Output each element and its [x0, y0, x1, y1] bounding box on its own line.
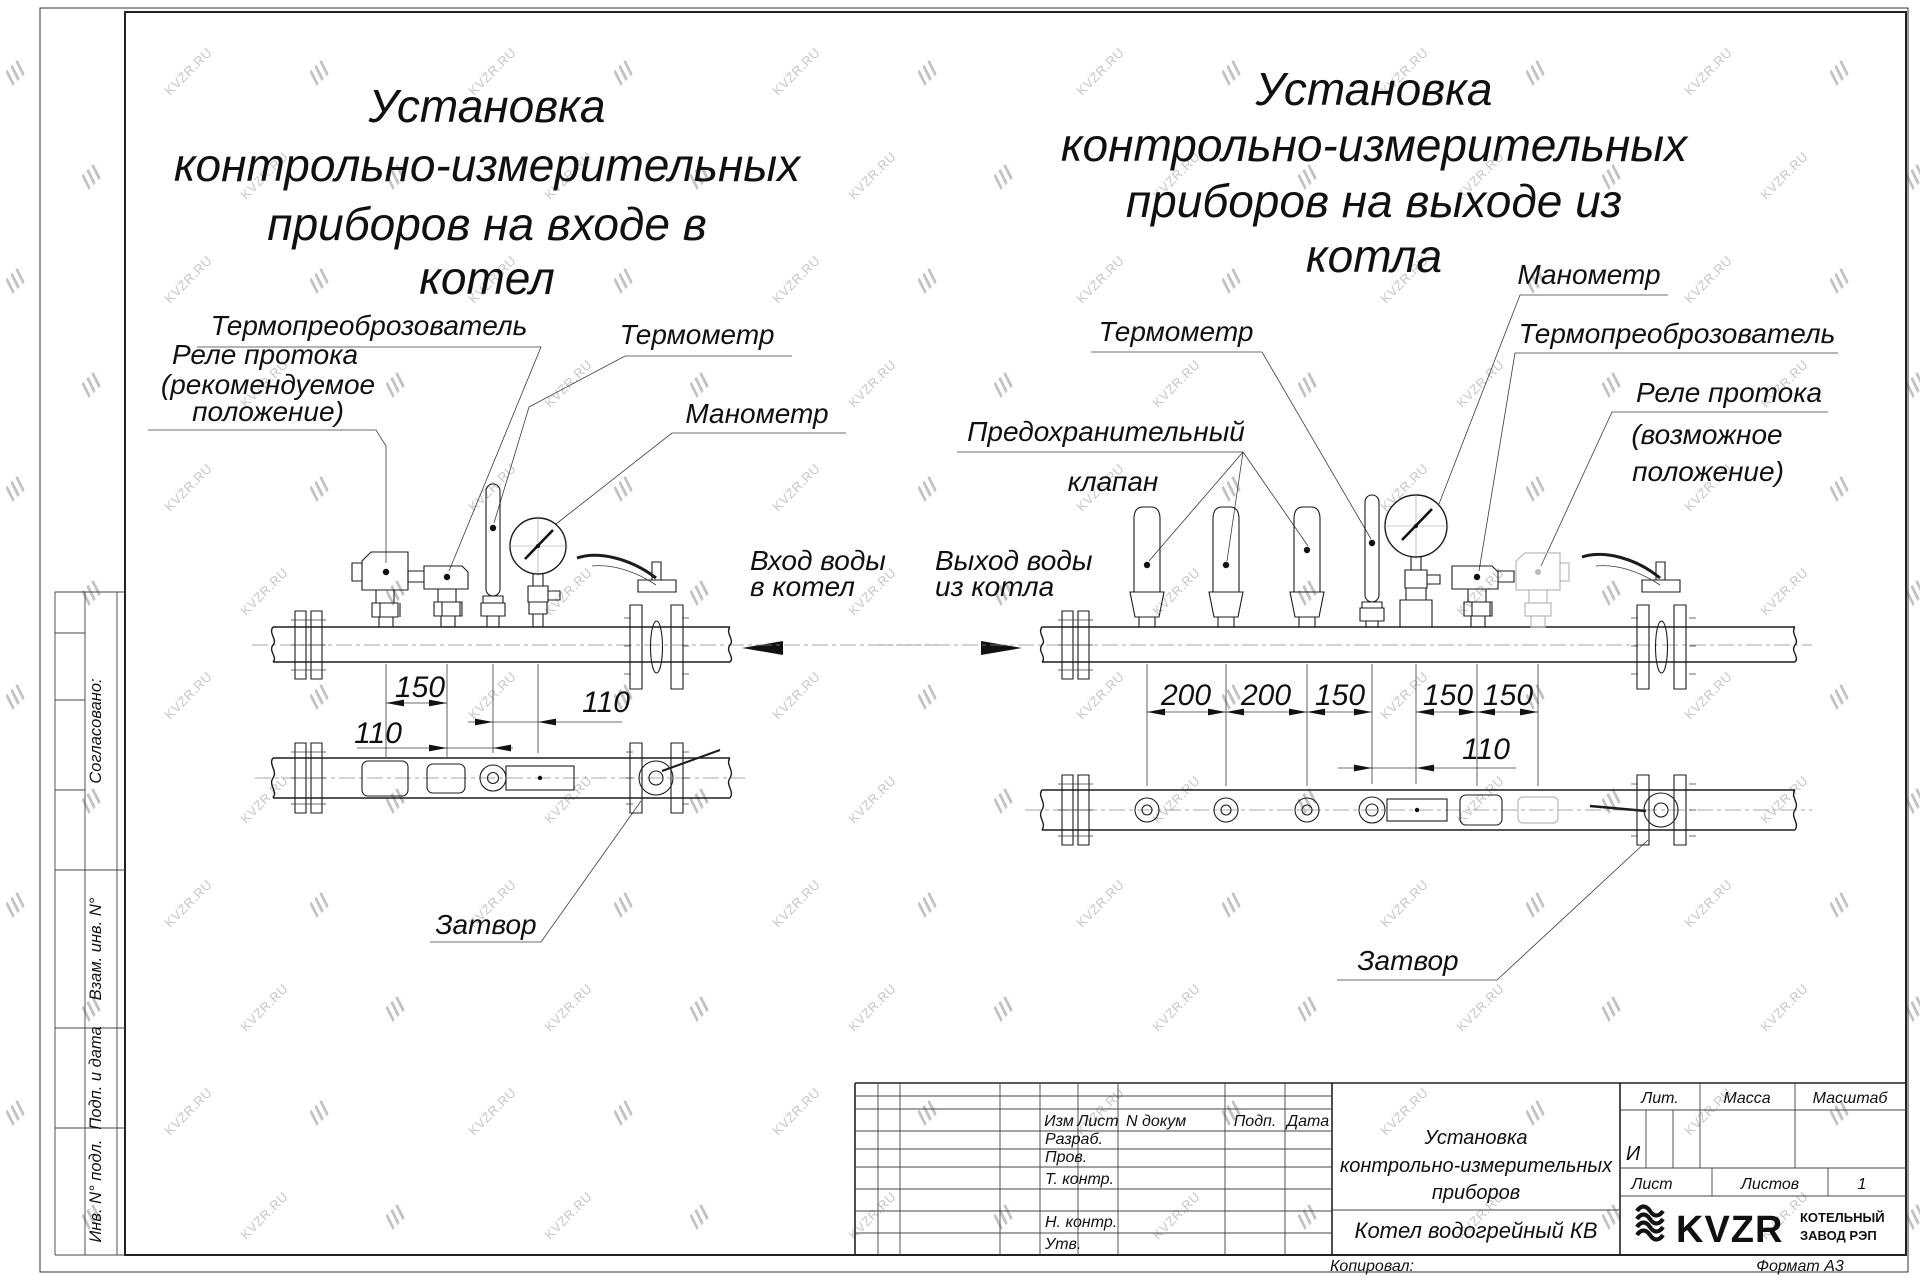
sheet-label: Лист	[1630, 1176, 1672, 1193]
sidebar-label-replace-inv: Взам. инв. N°	[87, 897, 105, 1000]
left-dim-150: 150	[395, 671, 445, 704]
title-block: Изм Лист N докум Подп. Дата Разраб. Пров…	[855, 1083, 1906, 1275]
col-sign: Подп.	[1234, 1113, 1277, 1130]
left-manometer	[508, 516, 568, 627]
left-dim-110-a: 110	[582, 686, 630, 719]
right-label-safety-valve-line2: клапан	[1068, 466, 1159, 497]
row-checked: Пров.	[1045, 1149, 1087, 1166]
sidebar-label-orig-inv: Инв. N° подл.	[87, 1139, 105, 1242]
left-dim-arrows	[386, 700, 556, 752]
right-valve-lever	[1582, 555, 1660, 578]
right-dim-150-a: 150	[1315, 679, 1365, 712]
left-label-thermometer: Термометр	[620, 319, 775, 350]
sidebar-label-agreed: Согласовано:	[87, 678, 105, 783]
mass-label: Масса	[1723, 1090, 1770, 1107]
left-label-flow-relay-line1: Реле протока	[172, 339, 358, 370]
right-thermometer	[1360, 495, 1384, 627]
right-dim-150-c: 150	[1483, 679, 1533, 712]
right-butterfly-valve	[1582, 555, 1696, 689]
brand-sub-line2: ЗАВОД РЭП	[1800, 1228, 1877, 1243]
left-view: Установка контрольно-измерительных прибо…	[148, 80, 938, 942]
left-leader-manometer	[556, 433, 846, 524]
right-label-thermometer: Термометр	[1099, 316, 1254, 347]
col-izm: Изм	[1044, 1113, 1074, 1130]
doc-title-line1: Установка	[1423, 1127, 1527, 1149]
left-flow-label-line2: в котел	[750, 571, 855, 602]
drawing-sheet: KVZR.RUKVZR.RUKVZR.RUKVZR.RUKVZR.RUKVZR.…	[0, 0, 1920, 1280]
row-t-control: Т. контр.	[1045, 1171, 1114, 1188]
right-title-line1: Установка	[1255, 63, 1493, 115]
left-label-manometer: Манометр	[685, 398, 828, 429]
row-n-control: Н. контр.	[1045, 1214, 1117, 1231]
doc-title-line2: контрольно-измерительных	[1340, 1155, 1613, 1177]
left-flow-switch	[352, 552, 408, 627]
right-label-flow-relay-line1: Реле протока	[1636, 377, 1822, 408]
left-title-line4: котел	[419, 252, 555, 304]
right-label-flow-relay-line2: (возможное	[1631, 419, 1782, 450]
right-transducer	[1452, 566, 1514, 627]
right-safety-valve-3	[1290, 507, 1324, 627]
right-safety-valve-1	[1130, 507, 1164, 627]
left-title-line2: контрольно-измерительных	[174, 139, 802, 191]
right-label-flow-relay-line3: положение)	[1632, 456, 1784, 487]
kvzr-logo-icon	[1637, 1207, 1663, 1240]
left-thermometer	[481, 484, 505, 627]
sidebar-label-sign-date: Подп. и дата	[87, 1026, 105, 1129]
right-label-transducer: Термопреоброзователь	[1519, 318, 1836, 349]
right-view: Установка контрольно-измерительных прибо…	[878, 63, 1838, 980]
right-safety-valve-2	[1209, 507, 1243, 627]
right-label-manometer: Манометр	[1517, 259, 1660, 290]
brand-sub-line1: КОТЕЛЬНЫЙ	[1800, 1210, 1885, 1225]
right-flow-arrow	[981, 641, 1022, 655]
left-transducer-point	[444, 574, 450, 580]
right-title-line3: приборов на выходе из	[1126, 175, 1622, 227]
right-title-line2: контрольно-измерительных	[1061, 119, 1689, 171]
col-doc: N докум	[1126, 1113, 1186, 1130]
col-list: Лист	[1076, 1113, 1118, 1130]
left-title-line3: приборов на входе в	[267, 198, 706, 250]
left-thermometer-point	[490, 525, 496, 531]
right-pipe-top-view	[1041, 627, 1797, 662]
right-label-valve: Затвор	[1357, 945, 1458, 976]
brand-text: KVZR	[1676, 1209, 1783, 1251]
right-manometer	[1383, 493, 1449, 627]
left-bottom-flow-switch	[362, 761, 408, 796]
scale-label: Масштаб	[1813, 1090, 1889, 1107]
lit-value: И	[1626, 1143, 1641, 1165]
left-label-flow-relay-line3: положение)	[192, 396, 344, 427]
drawing-canvas: Согласовано: Взам. инв. N° Подп. и дата …	[0, 0, 1920, 1280]
left-flow-switch-point	[383, 569, 389, 575]
right-dim-150-b: 150	[1423, 679, 1473, 712]
left-bottom-transducer	[427, 764, 465, 793]
left-dim-110-b: 110	[354, 717, 402, 750]
left-butterfly-valve	[577, 555, 689, 689]
left-label-valve: Затвор	[435, 909, 536, 940]
sheets-label: Листов	[1740, 1176, 1799, 1193]
copied-label: Копировал:	[1330, 1258, 1414, 1275]
left-valve-lever	[577, 555, 656, 578]
right-title-line4: котла	[1306, 230, 1442, 282]
left-leader-thermometer	[494, 356, 792, 523]
col-date: Дата	[1285, 1113, 1329, 1130]
object-name: Котел водогрейный КВ	[1354, 1218, 1597, 1243]
sidebar: Согласовано: Взам. инв. N° Подп. и дата …	[55, 592, 125, 1255]
right-flow-switch-ghost	[1516, 553, 1569, 627]
right-label-safety-valve-line1: Предохранительный	[967, 416, 1245, 447]
lit-label: Лит.	[1640, 1090, 1678, 1107]
format-label: Формат А3	[1756, 1258, 1844, 1275]
right-dim-200-a: 200	[1160, 679, 1211, 712]
left-title-line1: Установка	[368, 80, 606, 132]
row-approved: Утв.	[1044, 1236, 1081, 1253]
left-leader-flow-relay	[148, 430, 386, 563]
row-developed: Разраб.	[1045, 1131, 1103, 1148]
left-label-transducer: Термопреоброзователь	[211, 310, 528, 341]
left-flow-arrow	[742, 641, 783, 655]
kvzr-logo: KVZR КОТЕЛЬНЫЙ ЗАВОД РЭП	[1637, 1207, 1885, 1252]
sheets-value: 1	[1858, 1176, 1867, 1193]
doc-title-line3: приборов	[1432, 1182, 1520, 1204]
right-flow-label-line2: из котла	[935, 571, 1054, 602]
right-dim-110: 110	[1462, 733, 1510, 766]
right-dim-200-b: 200	[1240, 679, 1291, 712]
left-transducer	[408, 566, 468, 627]
